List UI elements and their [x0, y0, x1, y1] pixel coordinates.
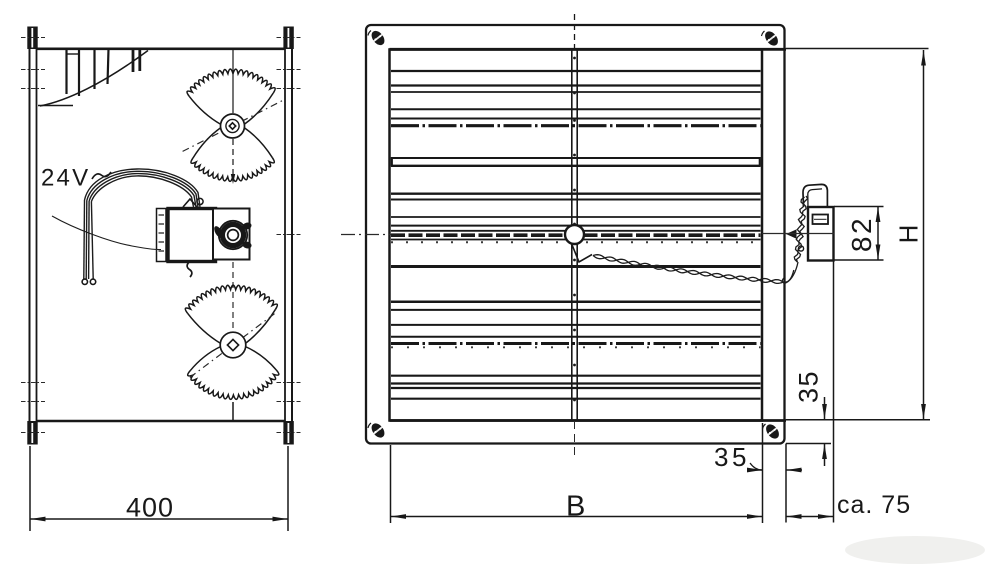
svg-text:400: 400 — [126, 493, 174, 523]
svg-text:82: 82 — [846, 216, 877, 252]
svg-text:24V: 24V — [41, 165, 90, 192]
svg-text:ca. 75: ca. 75 — [837, 491, 911, 519]
svg-text:B: B — [566, 491, 585, 523]
svg-text:H: H — [893, 225, 923, 244]
svg-text:35: 35 — [714, 442, 750, 472]
svg-text:35: 35 — [794, 370, 824, 403]
